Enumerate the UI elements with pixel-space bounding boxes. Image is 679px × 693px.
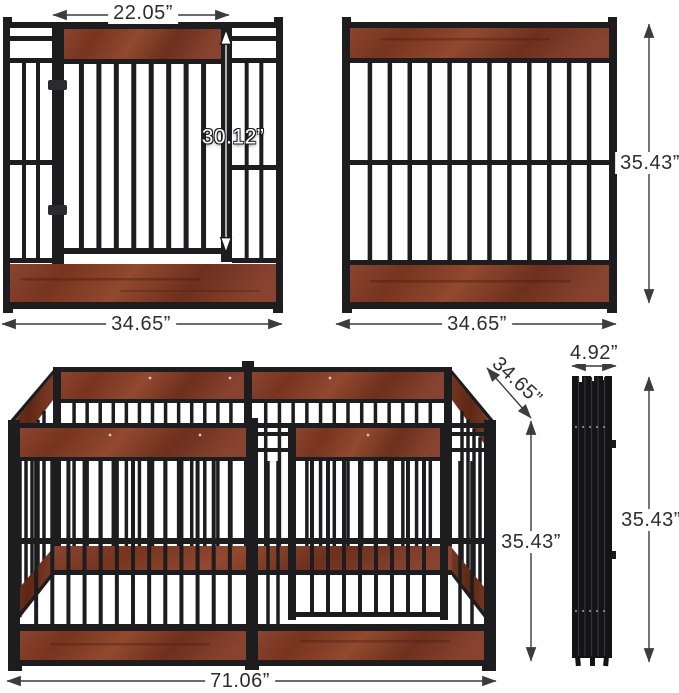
bar [406, 461, 410, 612]
ladder-rung [232, 36, 276, 41]
foot [607, 309, 617, 313]
back-plank-rail [61, 399, 244, 403]
gate-plank-rail [64, 59, 221, 64]
gate-wood-plank [64, 29, 221, 59]
ladder-rung [10, 58, 52, 63]
wood-grain [300, 640, 450, 643]
ladder-rung [448, 432, 484, 436]
gate-height-label: 30.12” [197, 126, 270, 149]
top-rail [342, 22, 617, 28]
bar [259, 63, 263, 260]
assembled-pen-figure [8, 361, 496, 671]
base-rail [8, 660, 496, 666]
bar [79, 64, 84, 248]
back-wood-plank [61, 372, 244, 399]
foot [3, 309, 13, 313]
pen-width-label: 71.06” [205, 670, 275, 692]
mid-rail [232, 165, 276, 170]
bar [201, 64, 206, 248]
right-section-bars [245, 63, 264, 260]
gate-top-rail [64, 24, 221, 29]
hinge-post [52, 22, 64, 265]
foot [273, 309, 283, 313]
bar [149, 64, 154, 248]
foot [8, 666, 22, 671]
stack-leg [603, 656, 609, 666]
foot [482, 666, 496, 671]
hinge [48, 205, 67, 215]
screw-dot [199, 434, 202, 437]
screw-dot [109, 434, 112, 437]
bar [422, 461, 426, 612]
base-rail [342, 302, 617, 309]
bottom-rail [10, 258, 52, 263]
gate-panel-figure [3, 17, 283, 313]
folded-width-label: 4.92” [565, 342, 623, 364]
screw-dot [229, 377, 232, 380]
back-plank-rail [252, 399, 444, 403]
folded-height-label: 35.43” [616, 509, 679, 531]
pen-gate-post [440, 424, 448, 620]
pen-height-label: 35.43” [496, 531, 566, 553]
bottom-rail [232, 258, 276, 263]
folded-panels-figure [572, 376, 616, 666]
bar [342, 461, 346, 612]
wood-grain [120, 290, 260, 292]
ladder-rung [10, 36, 52, 41]
plain-panel-figure [342, 17, 617, 313]
right-stile [276, 22, 283, 309]
mid-rail [350, 160, 609, 165]
bar [390, 461, 394, 612]
stack-leg [590, 656, 595, 666]
bar [245, 63, 249, 260]
foot [342, 309, 352, 313]
wood-grain [370, 280, 570, 283]
screw-dot [149, 377, 152, 380]
pen-gate-bars [310, 461, 426, 612]
product-dimension-diagram: 22.05” 30.12” 34.65” 34.65” 35.43” 34.65… [0, 0, 679, 693]
bar [131, 64, 136, 248]
ladder-rung [232, 58, 276, 63]
gate-width-label: 22.05” [108, 2, 178, 24]
screw-dot [367, 434, 370, 437]
top-wood-plank [350, 28, 609, 58]
plain-panel-height-label: 35.43” [615, 152, 679, 174]
bar [22, 63, 26, 260]
bar [310, 461, 314, 612]
bottom-rail [350, 260, 609, 265]
front-wood-plank [20, 428, 246, 457]
screw-dot [329, 377, 332, 380]
ladder-rung [258, 432, 288, 436]
pen-gate-plank [296, 428, 440, 457]
plain-panel-width-label: 34.65” [442, 313, 512, 335]
bar [326, 461, 330, 612]
front-bottom-plank [258, 631, 484, 660]
pen-gate-rail [296, 457, 440, 461]
left-stile [3, 22, 10, 309]
bottom-wood-plank [350, 265, 609, 302]
stack-notch [579, 376, 582, 382]
wood-grain [380, 38, 550, 41]
back-wood-plank [252, 372, 444, 399]
pen-gate-bottom-rail [296, 612, 440, 617]
bar [166, 64, 171, 248]
ladder-rung [448, 448, 484, 452]
front-bottom-rail [8, 624, 496, 631]
bar [36, 63, 40, 260]
wood-grain [20, 278, 200, 281]
front-mid-rail [8, 538, 496, 544]
pen-gate-post [288, 424, 296, 620]
hinge [48, 80, 67, 90]
left-stile [342, 22, 350, 309]
mid-rail [10, 160, 52, 165]
plank-rail [350, 58, 609, 63]
bottom-wood-plank [10, 264, 276, 302]
bar [466, 420, 470, 591]
front-plank-rail [20, 457, 246, 461]
bar [114, 64, 119, 248]
gate-bars [79, 64, 206, 248]
stack-knob [611, 551, 616, 559]
wood-grain [50, 643, 210, 646]
gate-panel-width-label: 34.65” [106, 313, 176, 335]
gate-bottom-rail [64, 248, 221, 254]
ladder-rung [258, 448, 288, 452]
base-rail [3, 302, 283, 309]
bar [374, 461, 378, 612]
stack-leg [575, 656, 581, 666]
stack-knob [611, 440, 616, 448]
bar [96, 64, 101, 248]
bar [358, 461, 362, 612]
bar [184, 64, 189, 248]
